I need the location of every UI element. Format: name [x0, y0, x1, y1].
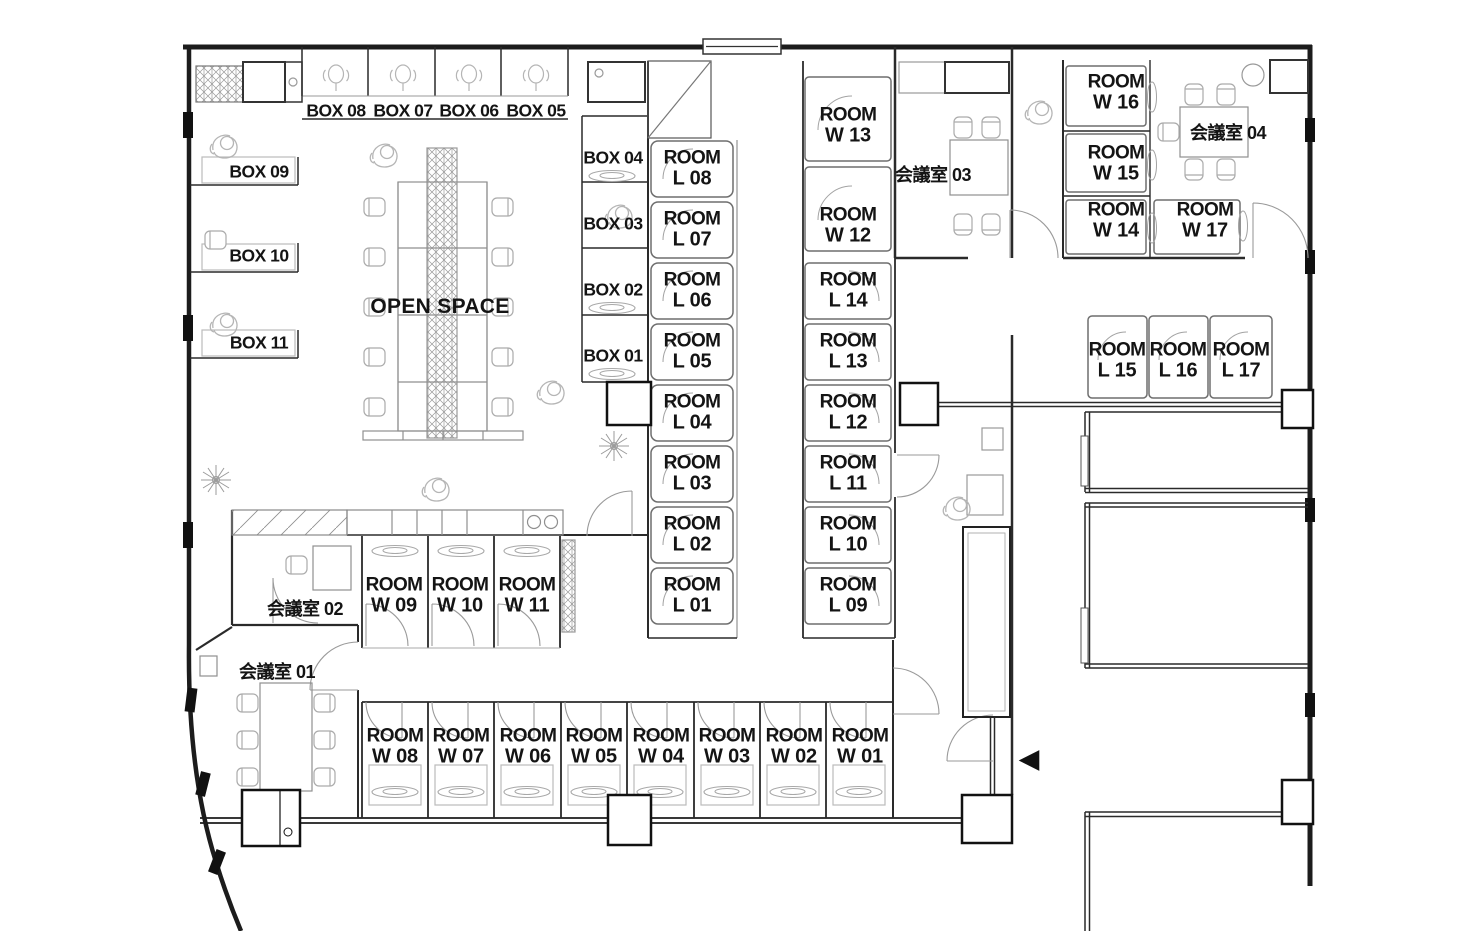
room-w05-label: ROOMW 05: [566, 726, 623, 767]
room-l10-label: ROOML 10: [820, 514, 877, 555]
box-09-label: BOX 09: [229, 162, 288, 183]
plant-icons: [201, 431, 629, 495]
meeting-room-03-label: 会議室 03: [895, 161, 971, 187]
room-w14-label: ROOMW 14: [1088, 200, 1145, 241]
room-w06-label: ROOMW 06: [500, 726, 557, 767]
room-l16-label: ROOML 16: [1150, 340, 1207, 381]
room-l15-label: ROOML 15: [1089, 340, 1146, 381]
room-w08-label: ROOMW 08: [367, 726, 424, 767]
box-10-label: BOX 10: [229, 246, 288, 267]
room-w11-label: ROOMW 11: [499, 575, 556, 616]
meeting-room-04-label: 会議室 04: [1190, 119, 1266, 145]
room-l12-label: ROOML 12: [820, 392, 877, 433]
room-w16-label: ROOMW 16: [1088, 72, 1145, 113]
room-w12-label: ROOMW 12: [820, 205, 877, 246]
box-11-label: BOX 11: [230, 333, 288, 354]
room-w03-label: ROOMW 03: [699, 726, 756, 767]
room-w13-label: ROOMW 13: [820, 105, 877, 146]
entrance-arrow-icon: ◀: [1019, 746, 1040, 773]
room-l03-label: ROOML 03: [664, 453, 721, 494]
room-w10-label: ROOMW 10: [432, 575, 489, 616]
room-l01-label: ROOML 01: [664, 575, 721, 616]
box-02-label: BOX 02: [583, 280, 642, 301]
meeting-room-01-label: 会議室 01: [239, 658, 315, 684]
box-08-label: BOX 08: [306, 101, 365, 122]
box-07-label: BOX 07: [373, 101, 432, 122]
room-w04-label: ROOMW 04: [633, 726, 690, 767]
room-l13-label: ROOML 13: [820, 331, 877, 372]
box-06-label: BOX 06: [439, 101, 498, 122]
room-l14-label: ROOML 14: [820, 270, 877, 311]
box-05-label: BOX 05: [506, 101, 565, 122]
room-w07-label: ROOMW 07: [433, 726, 490, 767]
meeting-room-02-label: 会議室 02: [267, 595, 343, 621]
room-w15-label: ROOMW 15: [1088, 143, 1145, 184]
room-l04-label: ROOML 04: [664, 392, 721, 433]
room-l05-label: ROOML 05: [664, 331, 721, 372]
room-l02-label: ROOML 02: [664, 514, 721, 555]
floor-plan: BOX 08 BOX 07 BOX 06 BOX 05 BOX 09 BOX 1…: [0, 0, 1475, 931]
room-l06-label: ROOML 06: [664, 270, 721, 311]
box-03-label: BOX 03: [583, 214, 642, 235]
room-w09-label: ROOMW 09: [366, 575, 423, 616]
room-w02-label: ROOMW 02: [766, 726, 823, 767]
box-04-label: BOX 04: [583, 148, 642, 169]
room-l11-label: ROOML 11: [820, 453, 877, 494]
room-w17-label: ROOMW 17: [1177, 200, 1234, 241]
room-l09-label: ROOML 09: [820, 575, 877, 616]
box-01-label: BOX 01: [583, 346, 642, 367]
room-l17-label: ROOML 17: [1213, 340, 1270, 381]
room-l08-label: ROOML 08: [664, 148, 721, 189]
open-space-label: OPEN SPACE: [370, 295, 509, 319]
room-l07-label: ROOML 07: [664, 209, 721, 250]
room-w01-label: ROOMW 01: [832, 726, 889, 767]
